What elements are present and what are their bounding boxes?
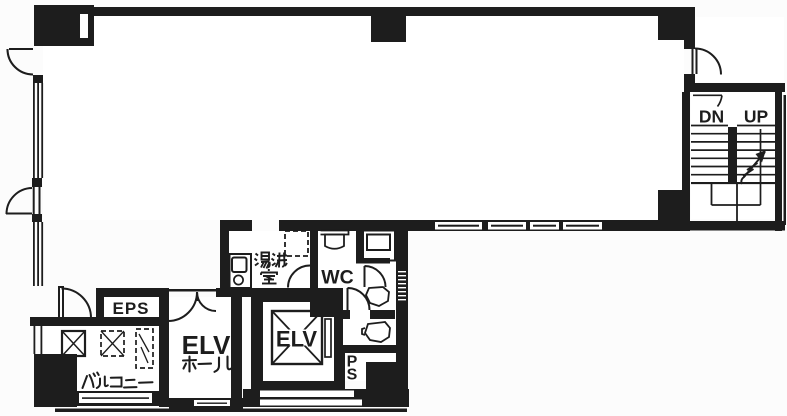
svg-text:EPS: EPS: [112, 299, 149, 318]
svg-text:DN: DN: [699, 107, 724, 127]
svg-text:WC: WC: [321, 267, 354, 289]
svg-text:S: S: [347, 367, 358, 384]
svg-text:UP: UP: [744, 107, 769, 127]
svg-text:ELV: ELV: [276, 327, 317, 352]
svg-text:ELV: ELV: [182, 330, 231, 360]
